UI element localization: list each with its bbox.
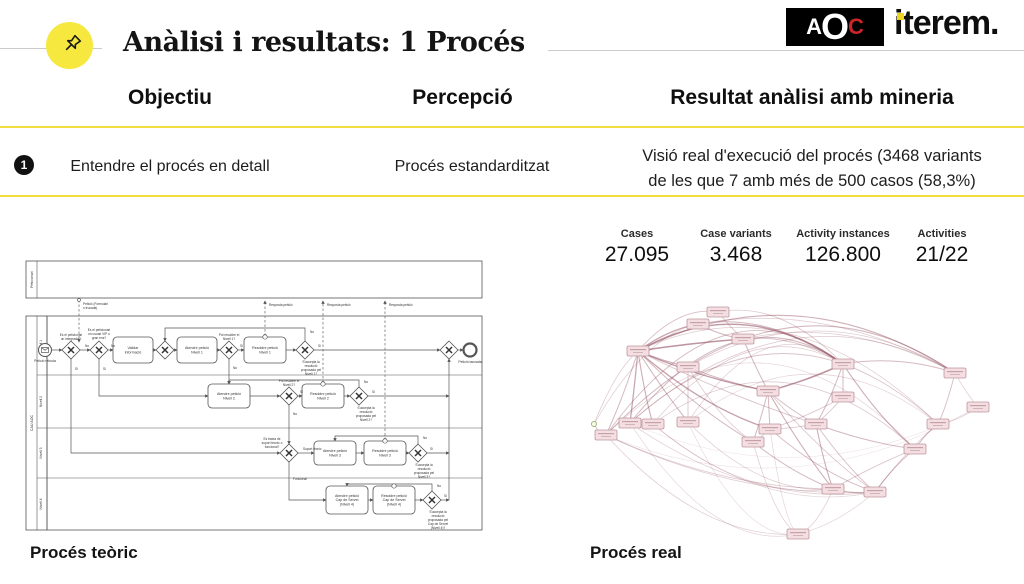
resultat-line-2: de les que 7 amb més de 500 casos (58,3%…	[598, 169, 1024, 194]
graph-edge	[816, 424, 833, 489]
bpmn-flow-label: No	[364, 380, 368, 384]
graph-node-text-line	[645, 422, 661, 423]
bpmn-message-label: Resposta petició	[269, 303, 293, 307]
graph-node-text-line	[713, 313, 723, 314]
bpmn-gateway-label: S'accepta laresolucióproposada pelNivell…	[414, 463, 434, 479]
caption-proces-real: Procés real	[590, 543, 682, 563]
bpmn-task-top-marker	[321, 382, 325, 386]
graph-activity-node	[687, 319, 709, 329]
graph-node-text-line	[762, 427, 778, 428]
graph-edge	[798, 489, 833, 534]
iterem-wordmark: iterem.	[894, 4, 999, 42]
stat-activities-label: Activities	[900, 228, 984, 240]
stat-cases: Cases 27.095	[588, 228, 686, 267]
stat-cases-value: 27.095	[588, 243, 686, 267]
bpmn-message-label: Petició (Formulario trucada)	[83, 302, 108, 310]
bpmn-pool	[26, 261, 482, 298]
graph-activity-node	[927, 419, 949, 429]
graph-node-text-line	[630, 349, 646, 350]
graph-activity-node	[677, 362, 699, 372]
bpmn-flow-label: Si	[318, 344, 321, 348]
cell-resultat: Visió real d'execució del procés (3468 v…	[598, 144, 1024, 194]
graph-node-text-line	[625, 424, 635, 425]
graph-node-text-line	[601, 436, 611, 437]
bpmn-gateway-label: S'accepta laresolucióproposada pelNivell…	[356, 406, 376, 422]
bpmn-flow-label: Suport tècnic	[303, 447, 322, 451]
graph-node-text-line	[933, 425, 943, 426]
graph-node-text-line	[680, 365, 696, 366]
bpmn-sequence-flow	[99, 359, 208, 396]
divider-yellow-top	[0, 126, 1024, 128]
bpmn-sequence-flow	[289, 462, 326, 500]
stat-activity-instances-label: Activity instances	[786, 228, 900, 240]
caption-proces-teoric: Procés teòric	[30, 543, 138, 563]
graph-activity-node	[759, 424, 781, 434]
graph-node-text-line	[870, 493, 880, 494]
graph-node-text-line	[973, 408, 983, 409]
graph-activity-node	[595, 430, 617, 440]
bpmn-gateway-label: Es tracta desuport tècnic ofuncional?	[262, 437, 283, 449]
bpmn-flow-label: No	[111, 344, 115, 348]
graph-activity-node	[707, 307, 729, 317]
graph-edge	[875, 424, 938, 492]
graph-node-text-line	[748, 443, 758, 444]
row-number-badge: 1	[14, 155, 34, 175]
graph-node-text-line	[835, 395, 851, 396]
graph-node-text-line	[825, 487, 841, 488]
graph-node-text-line	[735, 337, 751, 338]
graph-node-text-line	[790, 532, 806, 533]
graph-node-text-line	[838, 365, 848, 366]
graph-node-text-line	[808, 422, 824, 423]
bpmn-gateway-label: S'accepta laresolucióproposada pelNivell…	[301, 360, 321, 376]
bpmn-flow-label: No	[423, 436, 427, 440]
bpmn-flow-label: No	[293, 412, 297, 416]
bpmn-task-top-marker	[392, 484, 396, 488]
graph-node-text-line	[710, 310, 726, 311]
bpmn-gateway-label: Pot resoldre elNivell 1?	[219, 333, 240, 341]
bpmn-flow-label: Si	[103, 367, 106, 371]
graph-activity-node	[787, 529, 809, 539]
graph-activity-node	[864, 487, 886, 497]
graph-activity-node	[642, 419, 664, 429]
column-header-resultat: Resultat anàlisi amb mineria	[600, 86, 1024, 110]
bpmn-message-source	[78, 299, 81, 302]
graph-activity-node	[742, 437, 764, 447]
stat-activity-instances: Activity instances 126.800	[786, 228, 900, 267]
bpmn-flow-label: No	[437, 484, 441, 488]
process-mining-graph	[588, 272, 1024, 550]
graph-node-text-line	[828, 490, 838, 491]
bpmn-lane-label: Nivell 3	[39, 447, 43, 458]
bpmn-task-top-marker	[263, 335, 267, 339]
graph-node-text-line	[930, 422, 946, 423]
bpmn-message-label: Resposta petició	[327, 303, 351, 307]
graph-node-text-line	[738, 340, 748, 341]
stat-activities-value: 21/22	[900, 243, 984, 267]
graph-node-text-line	[760, 389, 776, 390]
graph-activity-node	[822, 484, 844, 494]
graph-edge	[688, 344, 843, 422]
graph-node-text-line	[683, 423, 693, 424]
aoc-letter-a: A	[806, 16, 822, 38]
bpmn-flow-label: Si	[75, 367, 78, 371]
graph-edge	[743, 338, 843, 364]
bpmn-diagram: PeticionariCAU AOCNivell 1Nivell 2Nivell…	[25, 260, 485, 538]
bpmn-pool-label: CAU AOC	[30, 415, 34, 432]
graph-node-text-line	[811, 425, 821, 426]
graph-edge	[938, 373, 955, 424]
graph-activity-node	[832, 392, 854, 402]
bpmn-flow-label: No	[233, 366, 237, 370]
graph-activity-node	[732, 334, 754, 344]
graph-node-text-line	[648, 425, 658, 426]
bpmn-flow-label: Si	[430, 447, 433, 451]
graph-edge	[630, 423, 798, 536]
graph-node-text-line	[690, 322, 706, 323]
graph-edge	[630, 337, 843, 423]
graph-node-text-line	[793, 535, 803, 536]
bpmn-flow-label: No	[310, 330, 314, 334]
bpmn-lane-label: Nivell 4	[39, 498, 43, 509]
bpmn-end-event	[464, 344, 477, 357]
bpmn-flow-label: Si	[372, 390, 375, 394]
graph-activity-node	[805, 419, 827, 429]
aoc-letter-c: C	[848, 16, 864, 38]
stat-case-variants-value: 3.468	[686, 243, 786, 267]
bpmn-gateway-label: Es el peticionariun integrador?	[60, 333, 83, 341]
page-title: Anàlisi i resultats: 1 Procés	[123, 27, 525, 58]
graph-node-text-line	[838, 398, 848, 399]
resultat-line-1: Visió real d'execució del procés (3468 v…	[598, 144, 1024, 169]
graph-activity-node	[619, 418, 641, 428]
mining-stats: Cases 27.095 Case variants 3.468 Activit…	[588, 228, 1024, 267]
bpmn-flow-label: Si	[444, 494, 447, 498]
graph-node-text-line	[693, 325, 703, 326]
stat-case-variants-label: Case variants	[686, 228, 786, 240]
graph-edge	[688, 331, 955, 373]
graph-node-text-line	[680, 420, 696, 421]
graph-node-text-line	[622, 421, 638, 422]
bpmn-flow-label: No	[85, 344, 89, 348]
graph-edge	[798, 492, 875, 534]
graph-node-text-line	[765, 430, 775, 431]
graph-activity-node	[832, 359, 854, 369]
aoc-letter-o: O	[821, 9, 849, 45]
graph-node-text-line	[910, 450, 920, 451]
stat-cases-label: Cases	[588, 228, 686, 240]
graph-edge	[768, 391, 770, 429]
pushpin-icon	[46, 22, 93, 69]
aoc-logo: AOC	[786, 8, 884, 46]
graph-node-text-line	[745, 440, 761, 441]
stat-case-variants: Case variants 3.468	[686, 228, 786, 267]
bpmn-flow-label: Si	[240, 344, 243, 348]
graph-edge	[770, 429, 875, 492]
graph-node-text-line	[907, 447, 923, 448]
slide: Anàlisi i resultats: 1 Procés AOC iterem…	[0, 0, 1024, 584]
header-divider-right	[548, 50, 1024, 51]
graph-node-text-line	[763, 392, 773, 393]
graph-edge	[606, 435, 833, 489]
graph-node-text-line	[835, 362, 851, 363]
column-header-objectiu: Objectiu	[80, 86, 260, 110]
column-header-percepcio: Percepció	[370, 86, 555, 110]
graph-node-text-line	[598, 433, 614, 434]
bpmn-flow-label: Funcional	[293, 477, 307, 481]
bpmn-flow-label: Si	[300, 390, 303, 394]
bpmn-lane-label: Nivell 2	[39, 396, 43, 407]
graph-start-node	[592, 422, 597, 427]
graph-node-text-line	[950, 374, 960, 375]
iterem-yellow-dot-icon	[897, 13, 904, 20]
graph-activity-node	[757, 386, 779, 396]
iterem-logo: iterem.	[894, 4, 999, 43]
bpmn-pool-label: Peticionari	[30, 271, 34, 288]
stat-activity-instances-value: 126.800	[786, 243, 900, 267]
graph-activity-node	[967, 402, 989, 412]
graph-node-text-line	[947, 371, 963, 372]
bpmn-gateway-label: Es el peticionariun usuari VIP ogran ens…	[88, 328, 111, 340]
stat-activities: Activities 21/22	[900, 228, 984, 267]
bpmn-gateway-label: S'accepta laresolucióproposada pelCap de…	[428, 510, 448, 530]
graph-activity-node	[677, 417, 699, 427]
graph-node-text-line	[633, 352, 643, 353]
graph-activity-node	[904, 444, 926, 454]
graph-edge	[875, 449, 915, 492]
graph-node-text-line	[683, 368, 693, 369]
graph-activity-node	[944, 368, 966, 378]
bpmn-gateway-label: Pot resoldre elNivell 2?	[279, 379, 300, 387]
divider-yellow-bottom	[0, 195, 1024, 197]
bpmn-message-label: Resposta petició	[389, 303, 413, 307]
cell-objectiu: Entendre el procés en detall	[55, 158, 285, 176]
bpmn-end-label: Petició tancada	[458, 360, 481, 364]
graph-activity-node	[627, 346, 649, 356]
graph-node-text-line	[867, 490, 883, 491]
bpmn-start-label: Petició rebuda	[34, 359, 56, 363]
cell-percepcio: Procés estandarditzat	[377, 158, 567, 176]
graph-node-text-line	[970, 405, 986, 406]
bpmn-task-top-marker	[383, 439, 387, 443]
